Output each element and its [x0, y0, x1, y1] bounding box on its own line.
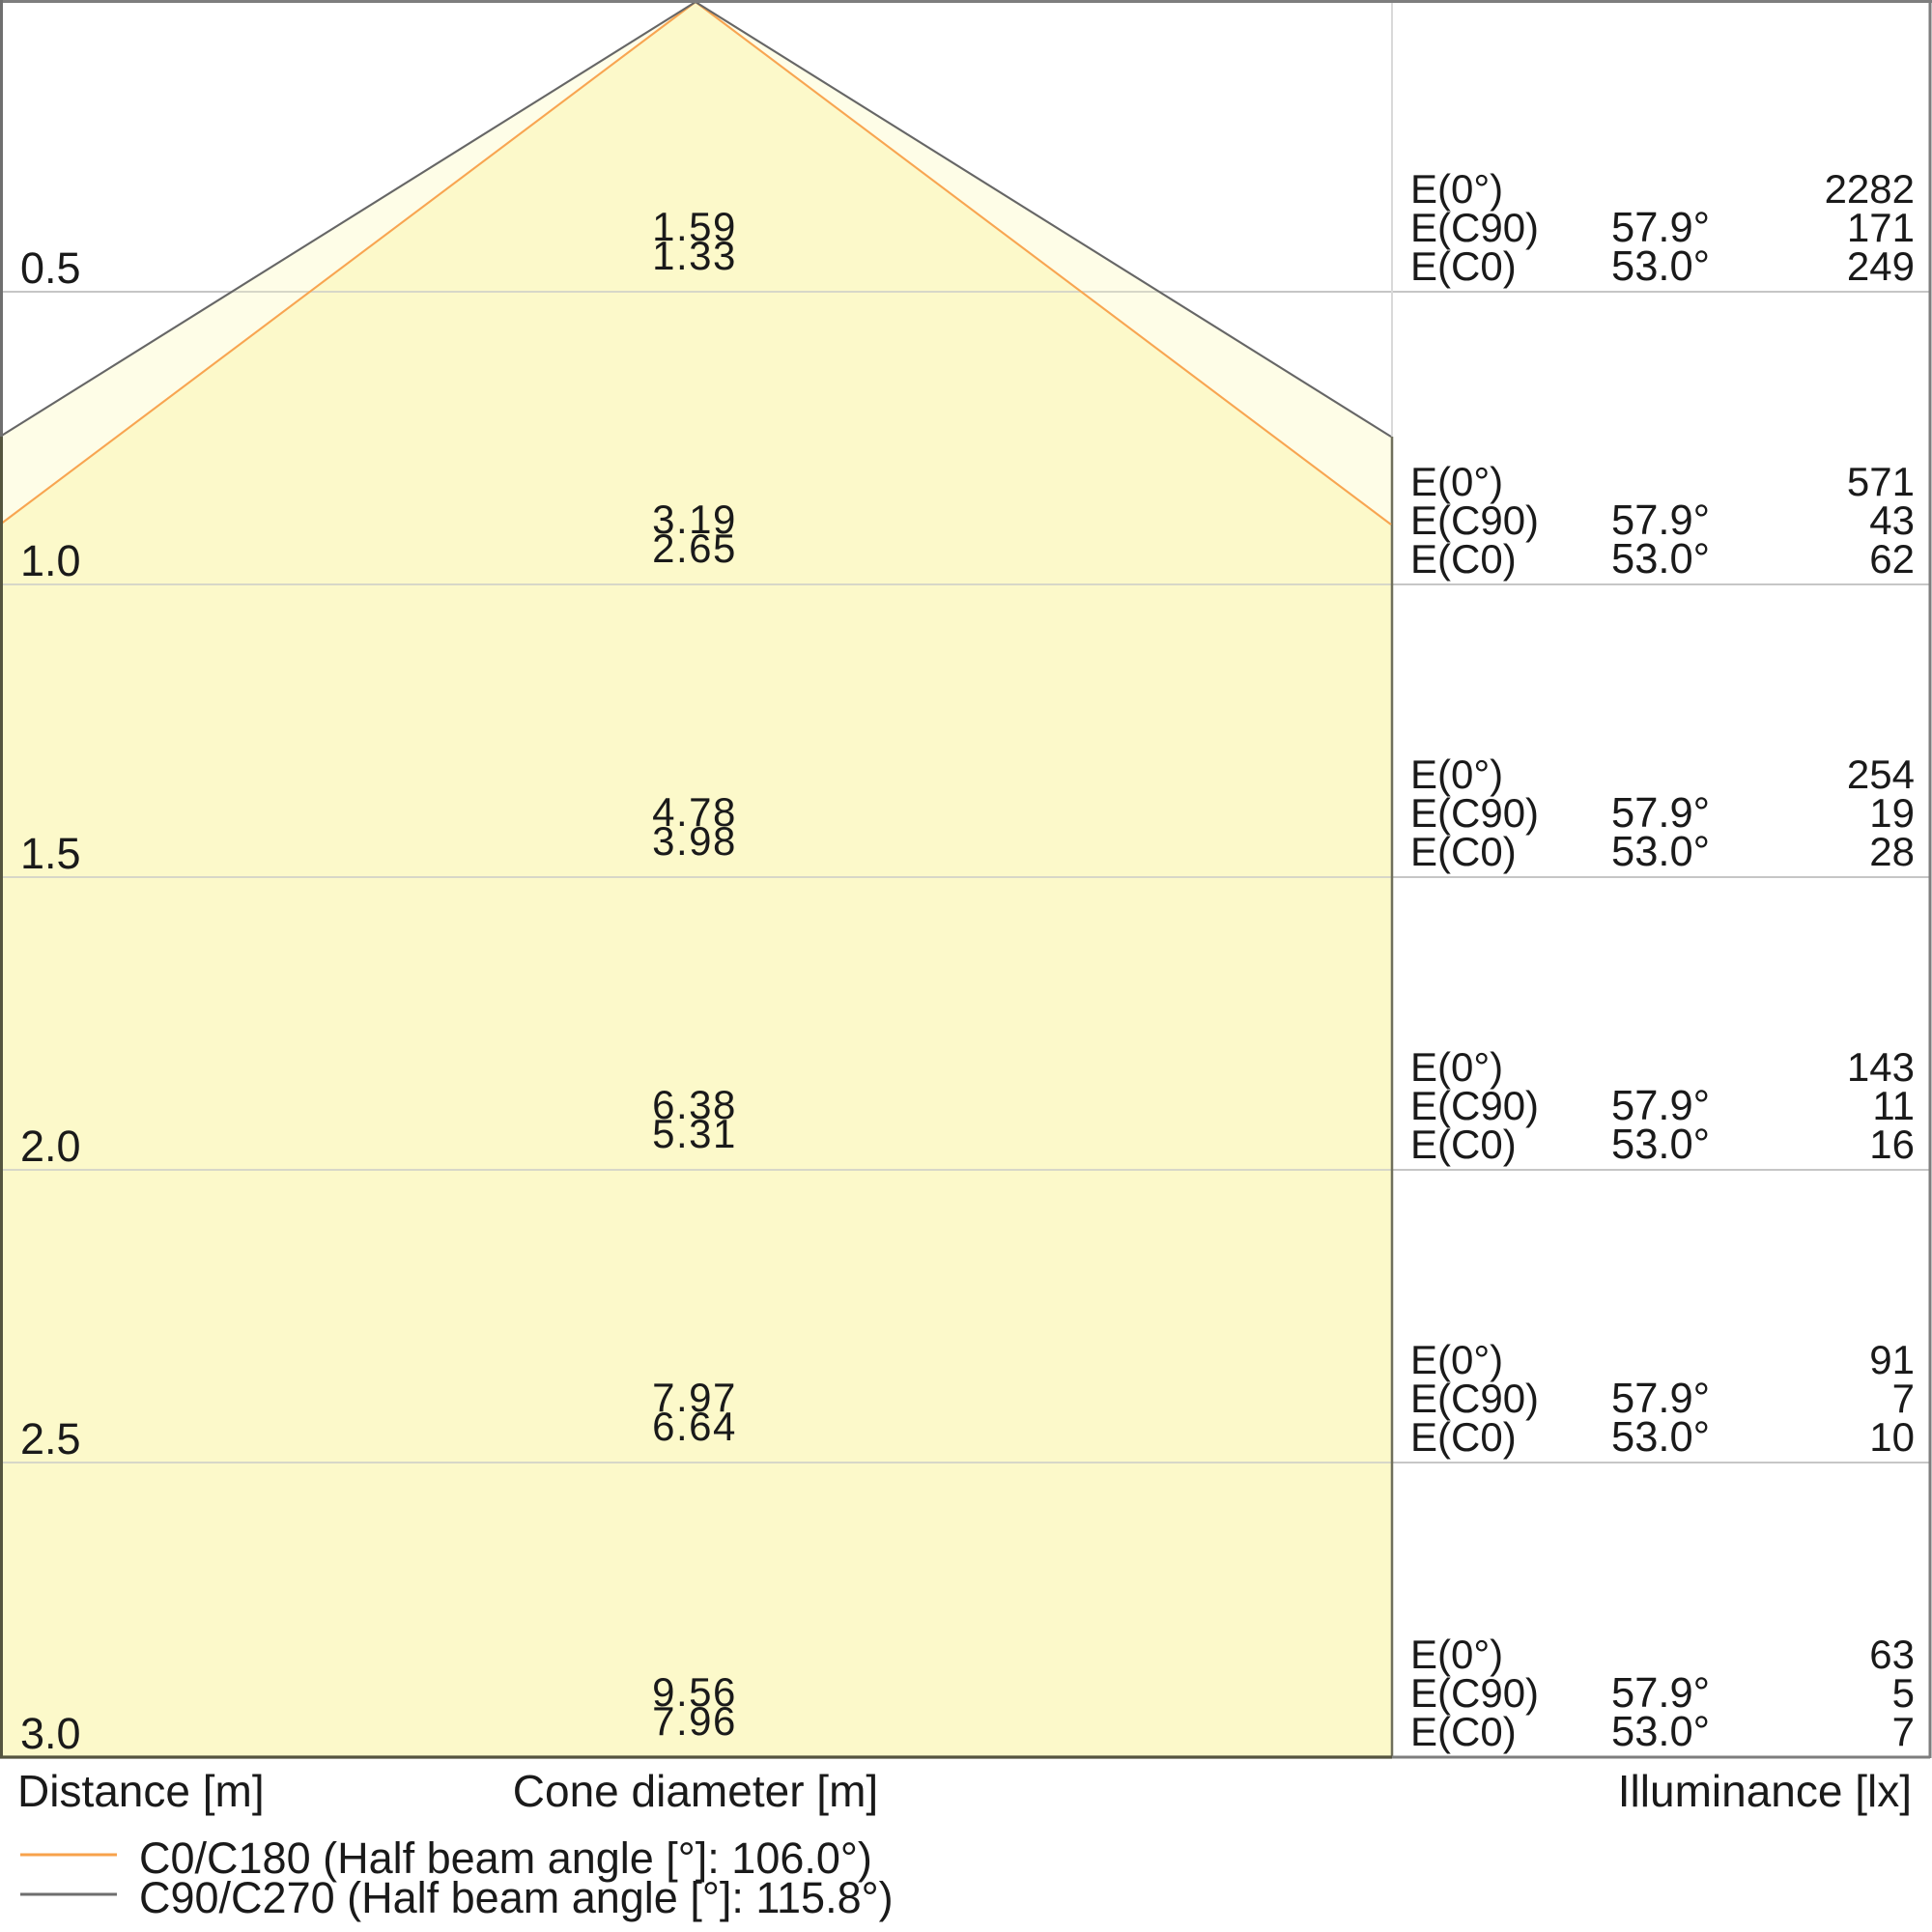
svg-text:1.33: 1.33 [652, 233, 737, 278]
svg-text:E(C0): E(C0) [1410, 1709, 1517, 1754]
svg-text:53.0°: 53.0° [1611, 243, 1710, 290]
svg-text:53.0°: 53.0° [1611, 1709, 1710, 1755]
svg-text:62: 62 [1869, 536, 1915, 582]
svg-text:2.0: 2.0 [20, 1122, 81, 1171]
svg-text:Illuminance [lx]: Illuminance [lx] [1618, 1766, 1912, 1816]
svg-text:53.0°: 53.0° [1611, 829, 1710, 875]
svg-text:7.96: 7.96 [652, 1698, 737, 1744]
svg-text:1.0: 1.0 [20, 536, 81, 585]
svg-text:5.31: 5.31 [652, 1111, 737, 1156]
svg-text:Distance [m]: Distance [m] [17, 1766, 265, 1816]
svg-text:53.0°: 53.0° [1611, 1414, 1710, 1461]
svg-text:C90/C270 (Half beam angle [°]:: C90/C270 (Half beam angle [°]: 115.8°) [139, 1873, 894, 1922]
svg-text:E(C0): E(C0) [1410, 829, 1517, 874]
svg-text:0.5: 0.5 [20, 243, 81, 293]
svg-text:3.98: 3.98 [652, 818, 737, 864]
svg-text:E(C0): E(C0) [1410, 1414, 1517, 1460]
svg-text:2.65: 2.65 [652, 526, 737, 571]
svg-text:53.0°: 53.0° [1611, 1122, 1710, 1168]
svg-text:E(C0): E(C0) [1410, 1122, 1517, 1167]
svg-text:6.64: 6.64 [652, 1404, 737, 1449]
svg-text:E(C0): E(C0) [1410, 536, 1517, 582]
svg-text:16: 16 [1869, 1122, 1915, 1167]
svg-text:2.5: 2.5 [20, 1414, 81, 1463]
svg-text:249: 249 [1847, 243, 1915, 289]
svg-text:53.0°: 53.0° [1611, 536, 1710, 582]
svg-text:7: 7 [1892, 1709, 1915, 1754]
svg-text:Cone diameter [m]: Cone diameter [m] [513, 1766, 878, 1816]
svg-text:E(C0): E(C0) [1410, 243, 1517, 289]
svg-text:3.0: 3.0 [20, 1709, 81, 1758]
svg-text:10: 10 [1869, 1414, 1915, 1460]
svg-text:28: 28 [1869, 829, 1915, 874]
svg-text:1.5: 1.5 [20, 829, 81, 878]
